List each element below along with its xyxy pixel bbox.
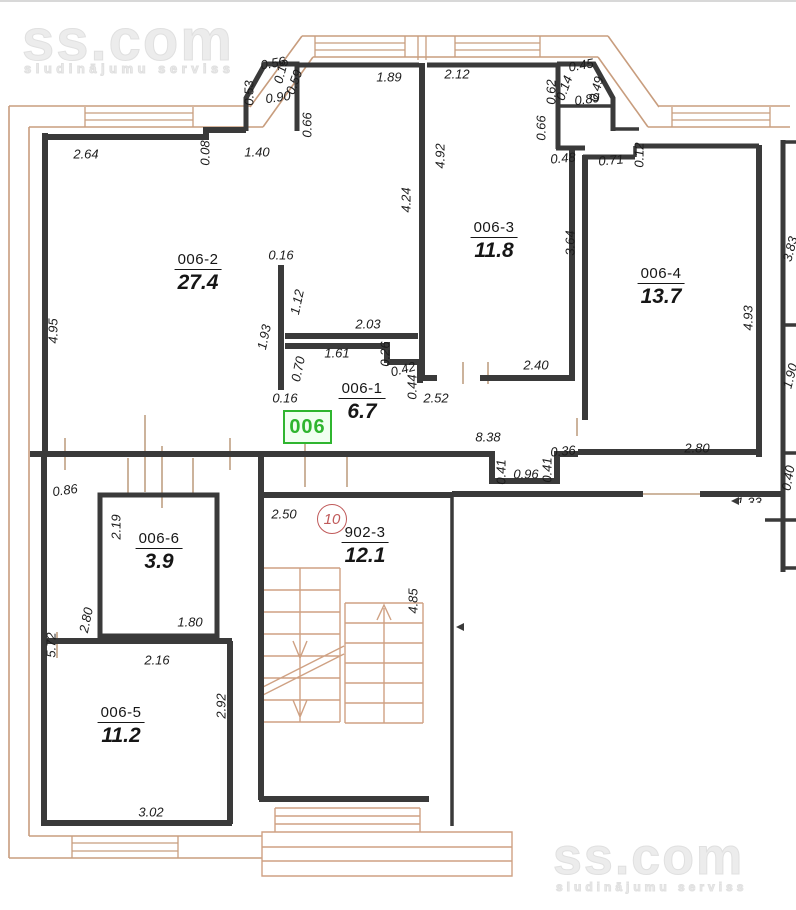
room-area: 13.7 xyxy=(641,285,682,309)
dimension-label: 0.48 xyxy=(550,150,576,165)
dimension-label: 8.38 xyxy=(475,431,500,444)
dimension-label: 0.36 xyxy=(550,443,576,458)
dimension-label: 2.16 xyxy=(144,654,169,667)
unit-number-badge: 006 xyxy=(283,410,332,444)
dimension-label: 0.40 xyxy=(779,464,796,491)
dimension-label: 2.50 xyxy=(271,508,296,521)
dimension-label: 2.03 xyxy=(355,318,380,331)
arrow-marks xyxy=(456,497,739,631)
floor-plan-drawing xyxy=(0,0,796,910)
porch-steps xyxy=(262,808,512,876)
dimension-label: 5.72 xyxy=(45,632,58,657)
room-label-006-6: 006-63.9 xyxy=(136,530,183,574)
dimension-label: 2.40 xyxy=(523,359,548,372)
room-number: 006-6 xyxy=(136,530,183,549)
dimension-label: 0.89 xyxy=(574,91,601,107)
dimension-label: 4.95 xyxy=(47,318,60,343)
dimension-label: 0.16 xyxy=(272,392,297,405)
dimension-label: 0.41 xyxy=(495,459,508,484)
dimension-label: 4.24 xyxy=(400,187,413,212)
dimension-label: 4.85 xyxy=(407,588,420,613)
dimension-label: 0.66 xyxy=(535,115,548,140)
dimension-label: 2.92 xyxy=(215,693,228,718)
dimension-label: 0.71 xyxy=(598,152,624,167)
dimension-label: 2.80 xyxy=(684,442,709,455)
floor-number-badge: 10 xyxy=(317,504,347,534)
room-label-006-1: 006-16.7 xyxy=(339,380,386,424)
room-label-006-2: 006-227.4 xyxy=(175,251,222,295)
room-label-006-4: 006-413.7 xyxy=(638,265,685,309)
room-label-902-3: 902-312.1 xyxy=(342,524,389,568)
dimension-label: 1.80 xyxy=(177,616,202,629)
dimension-label: 1.40 xyxy=(244,146,269,159)
room-number: 006-2 xyxy=(175,251,222,270)
dimension-label: 0.44 xyxy=(406,374,419,399)
dimension-label: 0.86 xyxy=(52,482,79,498)
floor-plan: ss.com sludinājumu serviss ss.com sludin… xyxy=(0,0,796,910)
dimension-label: 1.61 xyxy=(324,347,349,360)
room-label-006-3: 006-311.8 xyxy=(471,219,518,263)
dimension-label: 3.64 xyxy=(564,230,577,255)
room-area: 6.7 xyxy=(347,400,376,424)
stairs xyxy=(259,568,423,723)
dimension-label: 2.64 xyxy=(73,148,98,161)
dimension-label: 0.90 xyxy=(265,89,292,105)
dimension-label: 4.92 xyxy=(434,143,447,168)
dimension-label: 0.96 xyxy=(513,468,538,481)
dimension-label: 2.19 xyxy=(110,514,123,539)
room-area: 3.9 xyxy=(144,550,173,574)
dimension-label: 0.26 xyxy=(379,341,392,366)
dimension-label: 0.12 xyxy=(633,142,646,167)
dimension-label: 2.12 xyxy=(444,68,469,81)
room-area: 12.1 xyxy=(345,544,386,568)
room-number: 006-1 xyxy=(339,380,386,399)
dimension-label: 0.08 xyxy=(199,140,212,165)
dimension-label: 0.66 xyxy=(301,112,314,137)
dimension-label: 0.16 xyxy=(268,249,293,262)
dimension-label: 2.52 xyxy=(423,392,448,405)
dimension-label: 4.93 xyxy=(742,305,755,330)
room-area: 11.8 xyxy=(474,239,513,263)
room-number: 006-5 xyxy=(98,704,145,723)
room-number: 006-3 xyxy=(471,219,518,238)
dimension-label: 1.89 xyxy=(376,71,401,84)
room-area: 11.2 xyxy=(101,724,140,748)
dimension-label: 0.53 xyxy=(243,80,256,105)
room-number: 006-4 xyxy=(638,265,685,284)
room-area: 27.4 xyxy=(178,271,219,295)
dimension-label: 3.02 xyxy=(138,806,163,819)
room-number: 902-3 xyxy=(342,524,389,543)
room-label-006-5: 006-511.2 xyxy=(98,704,145,748)
dimension-label: 0.41 xyxy=(541,457,554,482)
